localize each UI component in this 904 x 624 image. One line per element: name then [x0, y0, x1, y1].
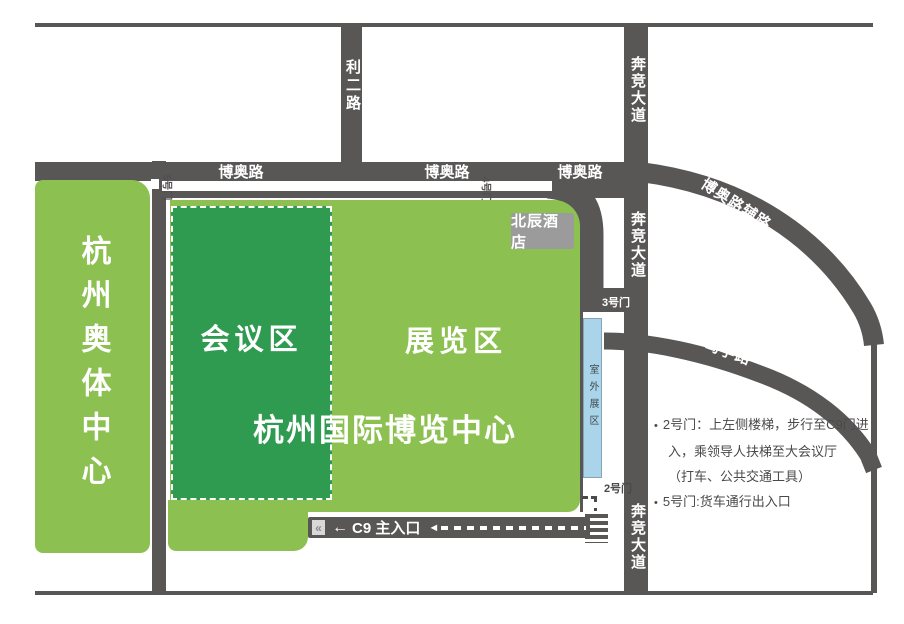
road-boao-fulu-curve	[640, 172, 874, 345]
road-label-benjing-south: 奔竞大道	[626, 502, 647, 572]
road-label-benjing-north: 奔竞大道	[626, 55, 647, 125]
venue-map: 5号门 4号门 杭州奥体中心 会议区 展览区 杭州国际博览中心 北辰酒店 室外展…	[0, 0, 904, 624]
road-label-lier: 利二路	[342, 55, 362, 117]
gate5-marker	[151, 179, 159, 189]
exhibition-zone-label: 展览区	[332, 318, 580, 360]
outdoor-zone-strip: 室外展区	[583, 318, 602, 478]
olympic-center-label: 杭州奥体中心	[35, 180, 150, 553]
note-line-4: •5号门:货车通行出入口	[654, 489, 894, 516]
hotel-label: 北辰酒店	[511, 210, 574, 252]
dashed-arrowhead-icon: ◄	[428, 522, 439, 534]
road-label-boao-west: 博奥路	[210, 163, 272, 182]
outdoor-zone-label: 室外展区	[585, 364, 600, 432]
entrance-gate-icon: «	[312, 520, 325, 535]
gate3-label: 3号门	[598, 294, 634, 310]
conference-zone-label: 会议区	[171, 316, 332, 358]
note-text-1: 2号门：上左侧楼梯，步行至C9门进	[663, 417, 869, 432]
note-line-3: （打车、公共交通工具）	[654, 464, 894, 489]
hotel-box: 北辰酒店	[511, 213, 574, 249]
note-text-4: 5号门:货车通行出入口	[663, 494, 791, 509]
expo-center-title: 杭州国际博览中心	[180, 405, 590, 450]
left-arrow-icon: ←	[332, 519, 348, 537]
dashed-route-line	[441, 526, 586, 530]
note-line-1: •2号门：上左侧楼梯，步行至C9门进	[654, 412, 894, 439]
expo-south-annex-block	[168, 500, 308, 551]
main-entrance-label: C9 主入口	[352, 517, 420, 538]
gate2-label: 2号门	[600, 480, 636, 496]
main-entrance-bar: « ← C9 主入口 ◄	[308, 517, 590, 538]
legend-notes: •2号门：上左侧楼梯，步行至C9门进 入，乘领导人扶梯至大会议厅 （打车、公共交…	[654, 412, 894, 516]
road-label-boao-mid: 博奥路	[416, 163, 478, 182]
road-label-boao-east: 博奥路	[549, 163, 611, 182]
bullet-icon: •	[654, 497, 658, 509]
olympic-center-block: 杭州奥体中心	[35, 180, 150, 553]
road-label-benjing-mid: 奔竞大道	[626, 210, 647, 280]
note-line-2: 入，乘领导人扶梯至大会议厅	[654, 439, 894, 464]
bullet-icon: •	[654, 420, 658, 432]
